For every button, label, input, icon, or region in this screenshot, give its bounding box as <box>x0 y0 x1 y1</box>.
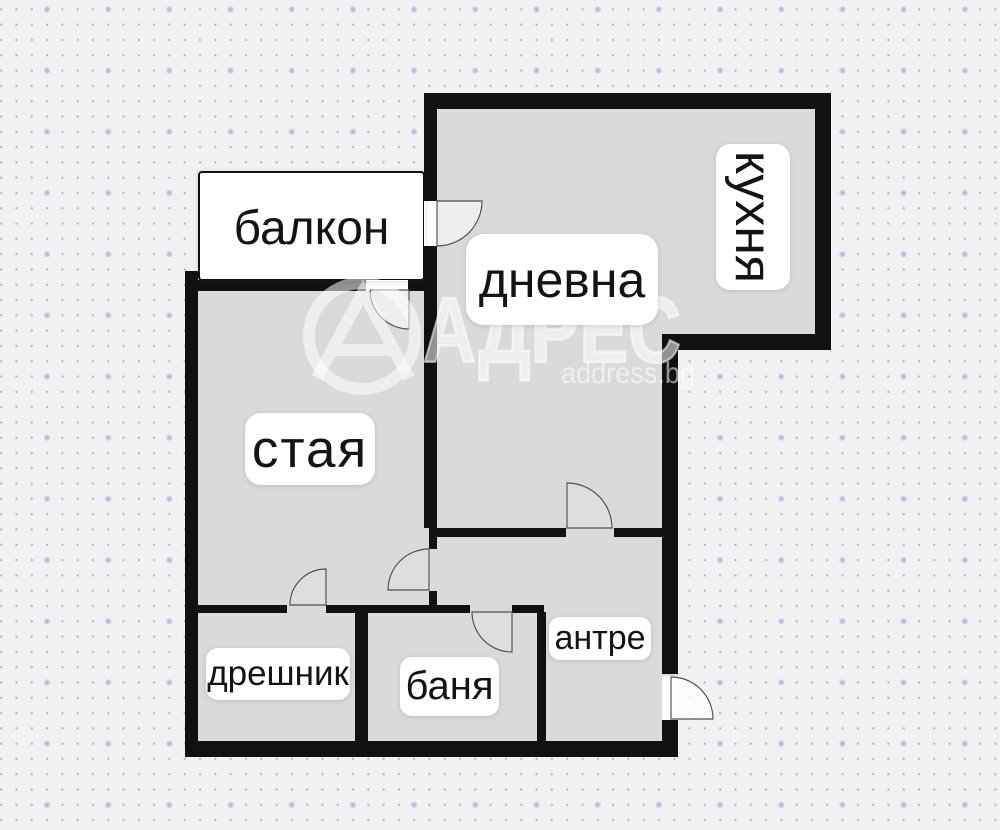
svg-text:address.bg: address.bg <box>561 357 695 390</box>
